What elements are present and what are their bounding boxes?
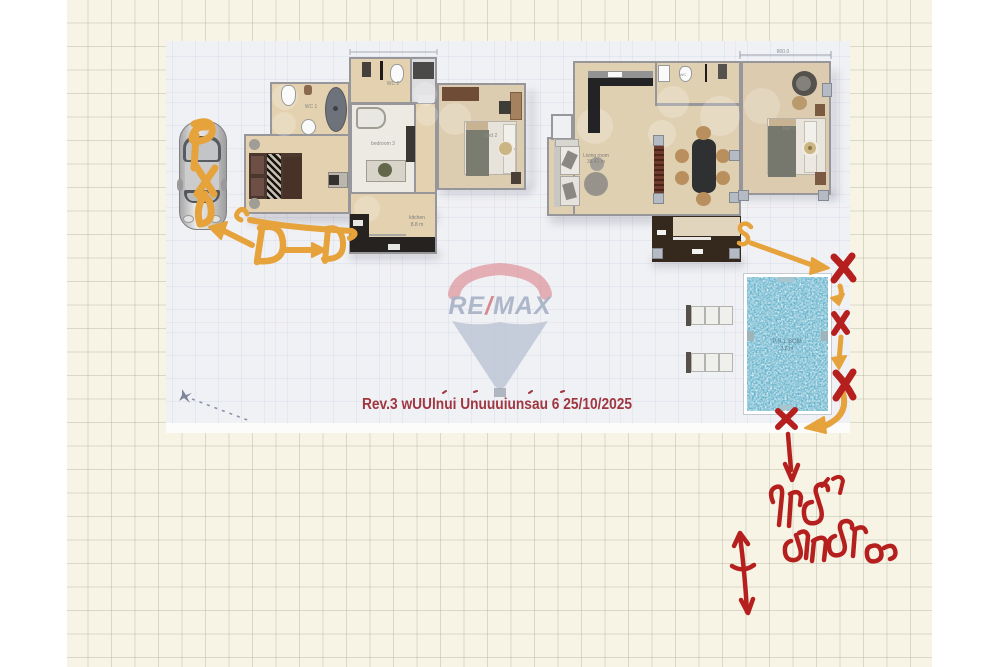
- svg-text:38.41 m: 38.41 m: [587, 159, 605, 165]
- svg-text:kitchen: kitchen: [409, 215, 425, 221]
- svg-text:bed 1: bed 1: [783, 126, 796, 132]
- svg-text:P 5.1 SQM: P 5.1 SQM: [772, 339, 801, 345]
- svg-text:RE/MAX: RE/MAX: [448, 292, 552, 320]
- svg-text:WC 1: WC 1: [305, 104, 318, 110]
- svg-text:bedroom 3: bedroom 3: [371, 141, 395, 147]
- svg-text:WC: WC: [680, 72, 687, 77]
- svg-text:8.8 m: 8.8 m: [411, 222, 424, 228]
- svg-text:3.6 m: 3.6 m: [781, 346, 794, 352]
- svg-text:WC 2: WC 2: [387, 81, 400, 87]
- svg-text:bed 2: bed 2: [485, 133, 498, 139]
- svg-text:800.0: 800.0: [777, 49, 790, 55]
- svg-text:Rev.3 wUUlnui Unuuuiunsau 6 25: Rev.3 wUUlnui Unuuuiunsau 6 25/10/2025: [362, 396, 632, 413]
